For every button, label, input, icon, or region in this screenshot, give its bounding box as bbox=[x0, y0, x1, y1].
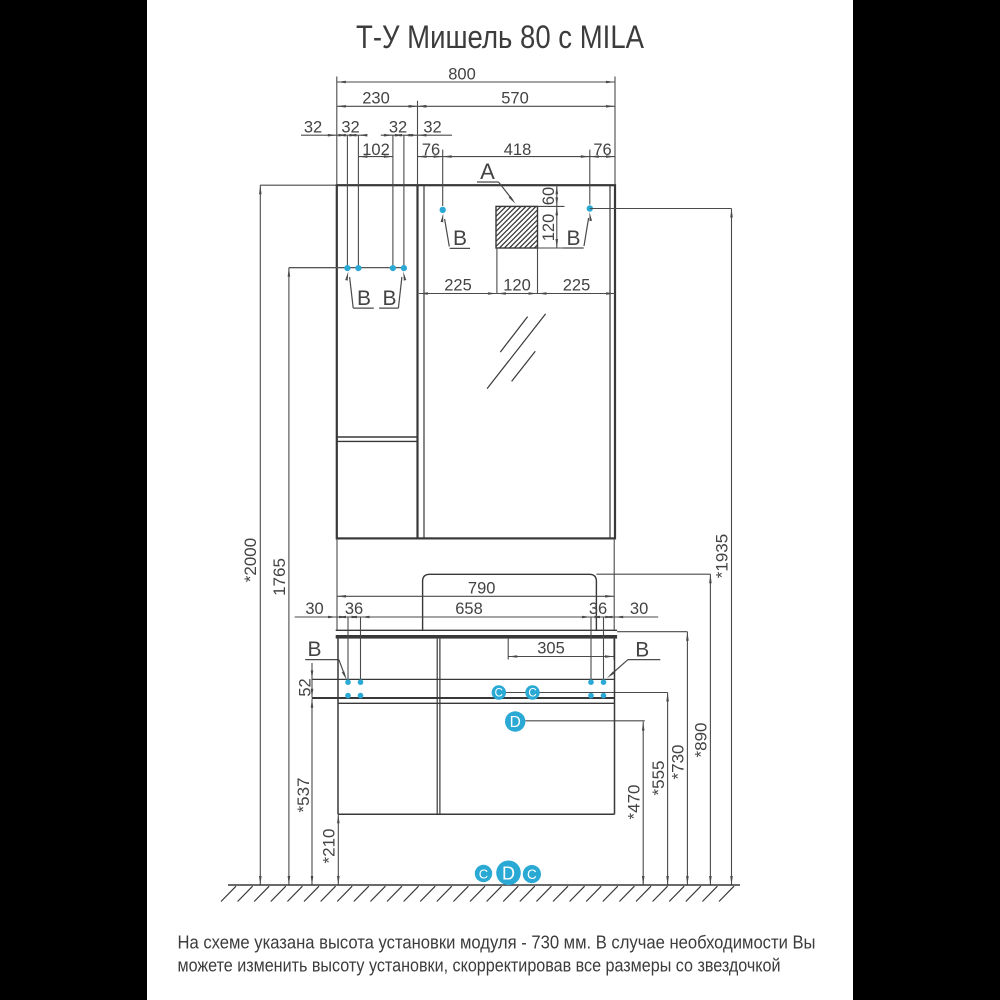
svg-text:305: 305 bbox=[537, 640, 565, 658]
svg-text:225: 225 bbox=[563, 277, 591, 295]
svg-text:418: 418 bbox=[504, 141, 532, 159]
svg-text:570: 570 bbox=[501, 90, 529, 108]
svg-text:B: B bbox=[307, 638, 321, 661]
svg-text:32: 32 bbox=[341, 118, 359, 136]
svg-text:36: 36 bbox=[345, 600, 363, 618]
svg-text:можете изменить высоту установ: можете изменить высоту установки, скорре… bbox=[178, 955, 781, 976]
svg-text:D: D bbox=[510, 714, 521, 731]
svg-text:B: B bbox=[635, 639, 649, 662]
svg-text:C: C bbox=[479, 866, 488, 881]
svg-text:658: 658 bbox=[455, 600, 483, 618]
svg-text:B: B bbox=[453, 227, 467, 250]
svg-text:C: C bbox=[527, 867, 537, 882]
svg-text:C: C bbox=[528, 688, 536, 700]
svg-text:800: 800 bbox=[448, 65, 476, 83]
svg-text:36: 36 bbox=[589, 600, 607, 618]
svg-text:C: C bbox=[495, 688, 503, 700]
svg-text:*210: *210 bbox=[320, 829, 339, 864]
svg-text:225: 225 bbox=[444, 277, 472, 295]
svg-text:76: 76 bbox=[422, 141, 440, 159]
svg-text:*2000: *2000 bbox=[241, 538, 260, 582]
svg-text:102: 102 bbox=[362, 141, 390, 159]
svg-text:230: 230 bbox=[362, 90, 390, 108]
svg-text:32: 32 bbox=[423, 118, 441, 136]
svg-text:*555: *555 bbox=[649, 761, 668, 796]
svg-text:B: B bbox=[566, 227, 580, 250]
svg-text:30: 30 bbox=[305, 600, 323, 618]
svg-text:32: 32 bbox=[304, 118, 322, 136]
svg-text:120: 120 bbox=[503, 277, 531, 295]
svg-text:1765: 1765 bbox=[270, 558, 289, 596]
svg-text:790: 790 bbox=[468, 580, 496, 598]
svg-text:*470: *470 bbox=[624, 785, 643, 820]
svg-text:B: B bbox=[382, 287, 396, 310]
svg-text:Т-У Мишель 80 с MILA: Т-У Мишель 80 с MILA bbox=[356, 19, 645, 55]
svg-text:60: 60 bbox=[540, 187, 558, 205]
svg-text:*537: *537 bbox=[294, 778, 313, 813]
svg-text:*730: *730 bbox=[669, 745, 688, 780]
svg-text:B: B bbox=[357, 287, 371, 310]
svg-text:30: 30 bbox=[630, 600, 648, 618]
svg-text:*1935: *1935 bbox=[713, 534, 732, 578]
svg-text:D: D bbox=[502, 863, 515, 883]
svg-text:*890: *890 bbox=[692, 723, 711, 758]
svg-text:A: A bbox=[480, 159, 495, 184]
svg-text:120: 120 bbox=[540, 214, 558, 242]
svg-text:76: 76 bbox=[593, 141, 611, 159]
svg-text:На схеме указана высота устано: На схеме указана высота установки модуля… bbox=[178, 932, 816, 953]
svg-text:52: 52 bbox=[296, 678, 314, 696]
svg-text:32: 32 bbox=[389, 118, 407, 136]
